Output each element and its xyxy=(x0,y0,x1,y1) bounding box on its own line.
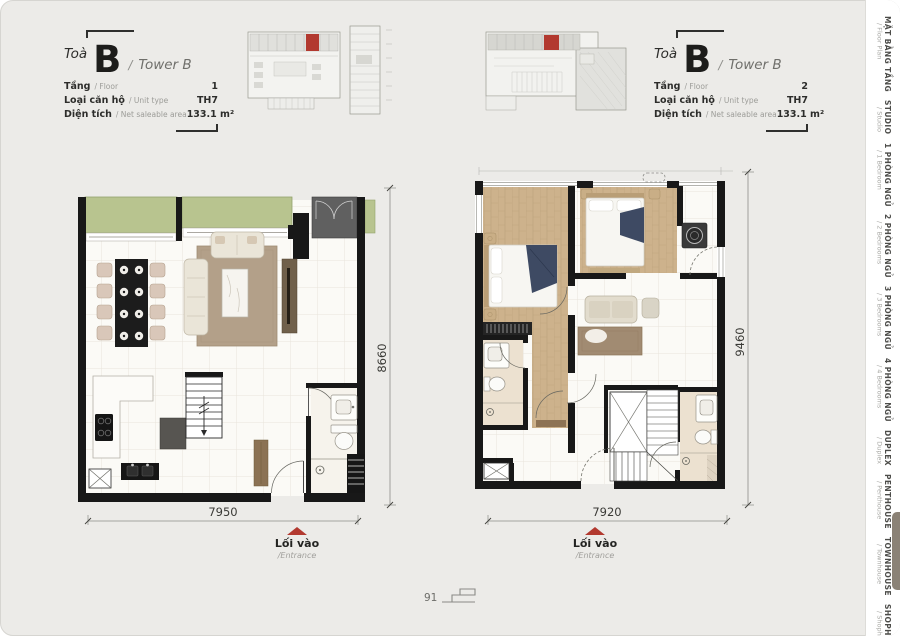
tower-name-en: Tower B xyxy=(138,57,191,73)
dim-width: 7950 xyxy=(208,505,237,519)
sink-counter xyxy=(121,463,159,480)
ac-ledge xyxy=(643,173,665,182)
sidebar-item-floor-plan[interactable]: MẶT BẰNG TẦNG / Floor Plan xyxy=(875,16,891,92)
dim-height: 9460 xyxy=(733,327,747,356)
corner-bracket-icon xyxy=(766,124,808,132)
page-number-text: 91 xyxy=(424,592,437,604)
highlighted-unit xyxy=(306,34,319,51)
unit-header-floor1: Toà B / Tower B Tầng / Floor 1 Loại căn … xyxy=(58,30,218,132)
dimension-bottom: 7950 xyxy=(85,505,361,525)
spec-row-floor: Tầng / Floor 2 xyxy=(654,81,808,92)
entry-patio xyxy=(312,197,357,238)
dimension-right: 8660 xyxy=(375,185,396,508)
wardrobe xyxy=(483,322,532,335)
step-logo-icon xyxy=(441,587,477,604)
entrance-arrow-icon xyxy=(287,527,307,535)
tower-letter: B xyxy=(683,46,711,75)
sidebar-item-townhouse[interactable]: TOWNHOUSE / Townhouse xyxy=(875,537,891,596)
dim-width: 7920 xyxy=(592,505,621,519)
bathroom xyxy=(306,383,365,493)
spec-row-unit-type: Loại căn hộ / Unit type TH7 xyxy=(64,95,218,106)
divider-slash: / xyxy=(718,58,722,72)
sidebar-item-shophouse[interactable]: SHOPHOUSE / Shophouse xyxy=(875,604,891,636)
bathroom-1 xyxy=(483,340,525,425)
entrance-marker-floor1: Lối vào /Entrance xyxy=(242,527,352,560)
spec-row-area: Diện tích / Net saleable area 133.1 m² xyxy=(654,109,808,120)
active-section-indicator[interactable] xyxy=(892,512,900,590)
floor-plan-1-svg: 7950 8660 xyxy=(75,180,400,525)
spec-row-unit-type: Loại căn hộ / Unit type TH7 xyxy=(654,95,808,106)
armchair xyxy=(642,298,659,318)
corner-bracket-icon xyxy=(86,30,134,38)
dimension-bottom: 7920 xyxy=(485,505,730,525)
tower-title: Toà B / Tower B xyxy=(648,39,808,75)
entrance-marker-floor2: Lối vào /Entrance xyxy=(540,527,650,560)
entrance-arrow-icon xyxy=(585,527,605,535)
toilet xyxy=(489,377,505,391)
spec-table: Tầng / Floor 2 Loại căn hộ / Unit type T… xyxy=(648,81,808,120)
key-plan-floor2 xyxy=(480,18,635,118)
highlighted-unit xyxy=(544,35,559,50)
service-shaft xyxy=(89,469,111,488)
floor-plan-2: 7920 9460 xyxy=(470,165,760,525)
divider-slash: / xyxy=(128,58,132,72)
spec-table: Tầng / Floor 1 Loại căn hộ / Unit type T… xyxy=(58,81,218,120)
cooktop xyxy=(95,414,113,441)
dimension-right: 9460 xyxy=(733,169,754,508)
kitchen-island xyxy=(160,418,186,449)
corner-bracket-icon xyxy=(676,30,724,38)
corner-bracket-icon xyxy=(176,124,218,132)
toilet xyxy=(695,430,711,444)
sidebar-item-4-bedrooms[interactable]: 4 PHÒNG NGỦ / 4 Bedrooms xyxy=(875,358,891,422)
service-shaft xyxy=(484,463,509,479)
sidebar-item-duplex[interactable]: DUPLEX / Duplex xyxy=(875,430,891,466)
tower-prefix: Toà xyxy=(64,46,87,62)
bedroom-1 xyxy=(484,233,557,320)
tower-letter: B xyxy=(93,46,121,75)
tower-prefix: Toà xyxy=(654,46,677,62)
page-number: 91 xyxy=(424,587,477,604)
headboard xyxy=(586,193,644,198)
hall-cabinet xyxy=(254,440,268,486)
dimension-top xyxy=(479,167,733,175)
toilet xyxy=(331,425,357,433)
unit-header-floor2: Toà B / Tower B Tầng / Floor 2 Loại căn … xyxy=(648,30,808,132)
sofa-2 xyxy=(211,232,264,258)
sidebar-item-1-bedroom[interactable]: 1 PHÒNG NGỦ / 1 Bedroom xyxy=(875,143,891,207)
category-sidebar: MẶT BẰNG TẦNG / Floor Plan STUDIO / Stud… xyxy=(865,0,900,636)
headboard xyxy=(484,245,489,307)
tower-name-en: Tower B xyxy=(728,57,781,73)
brochure-page: Toà B / Tower B Tầng / Floor 1 Loại căn … xyxy=(0,0,900,636)
site-building-right xyxy=(350,26,392,114)
tower-title: Toà B / Tower B xyxy=(58,39,218,75)
stairs xyxy=(185,372,223,438)
site-floor-plate xyxy=(486,32,626,110)
site-building-left xyxy=(248,32,340,109)
key-plan-floor1 xyxy=(240,20,425,120)
sidebar-item-3-bedrooms[interactable]: 3 PHÒNG NGỦ / 3 Bedrooms xyxy=(875,286,891,350)
dim-height: 8660 xyxy=(375,343,389,372)
key-plan-floor1-svg xyxy=(240,20,425,120)
spec-row-area: Diện tích / Net saleable area 133.1 m² xyxy=(64,109,218,120)
sidebar-item-studio[interactable]: STUDIO / Studio xyxy=(875,100,891,134)
sidebar-item-penthouse[interactable]: PENTHOUSE / Penthouse xyxy=(875,474,891,529)
floor-plan-2-svg: 7920 9460 xyxy=(470,165,760,525)
floor-plan-1: 7950 8660 xyxy=(75,180,400,525)
coffee-table xyxy=(222,269,248,317)
sidebar-item-2-bedrooms[interactable]: 2 PHÒNG NGỦ / 2 Bedrooms xyxy=(875,214,891,278)
spec-row-floor: Tầng / Floor 1 xyxy=(64,81,218,92)
key-plan-floor2-svg xyxy=(480,18,635,118)
